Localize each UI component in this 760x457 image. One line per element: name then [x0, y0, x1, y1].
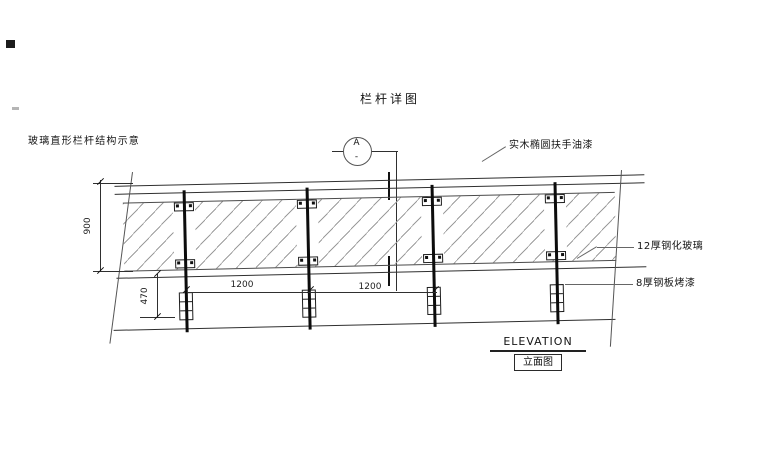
artifact-dash [12, 107, 19, 110]
artifact-square [6, 40, 15, 48]
handrail-callout: 实木椭圆扶手油漆 [509, 140, 593, 151]
bolt-icon [313, 258, 316, 261]
dim-470-text: 470 [141, 278, 151, 314]
bolt-icon [177, 261, 180, 264]
section-marker-sub: - [343, 153, 370, 163]
section-marker-letter: A [343, 139, 370, 149]
bolt-icon [299, 202, 302, 205]
bolt-icon [424, 199, 427, 202]
elevation-label-cn: 立面图 [523, 357, 553, 368]
bolt-icon [438, 256, 441, 259]
bolt-icon [176, 204, 179, 207]
bolt-icon [547, 196, 550, 199]
railing-assembly [106, 160, 658, 347]
bolt-icon [300, 259, 303, 262]
dim-1200-text-1: 1200 [214, 281, 270, 291]
bolt-icon [548, 253, 551, 256]
dim-1200-text-2: 1200 [342, 283, 398, 293]
glass-leader-line [597, 247, 634, 248]
glass-callout: 12厚钢化玻璃 [637, 241, 703, 252]
handrail-leader-line [482, 146, 506, 162]
railing-post [295, 187, 322, 331]
bolt-icon [561, 253, 564, 256]
steel-leader-line [565, 284, 633, 285]
dim-1200-line [187, 292, 437, 293]
bolt-icon [425, 256, 428, 259]
bolt-icon [190, 261, 193, 264]
elevation-label-en: ELEVATION [492, 336, 584, 348]
railing-post [542, 182, 569, 326]
railing-post [172, 190, 199, 334]
bolt-icon [560, 196, 563, 199]
bolt-icon [189, 204, 192, 207]
elevation-drawing: 栏杆详图 玻璃直形栏杆结构示意 A - [0, 0, 760, 457]
dim-470-line [157, 274, 158, 317]
dim-900-text: 900 [84, 208, 94, 244]
steel-callout: 8厚钢板烤漆 [636, 278, 695, 289]
structure-note: 玻璃直形栏杆结构示意 [28, 136, 140, 147]
elevation-label-cn-box: 立面图 [514, 354, 562, 371]
railing-post [420, 185, 447, 329]
elevation-underline [490, 350, 586, 352]
drawing-title: 栏杆详图 [330, 93, 450, 106]
bolt-icon [437, 199, 440, 202]
dim-900-line [100, 180, 101, 272]
bolt-icon [312, 201, 315, 204]
